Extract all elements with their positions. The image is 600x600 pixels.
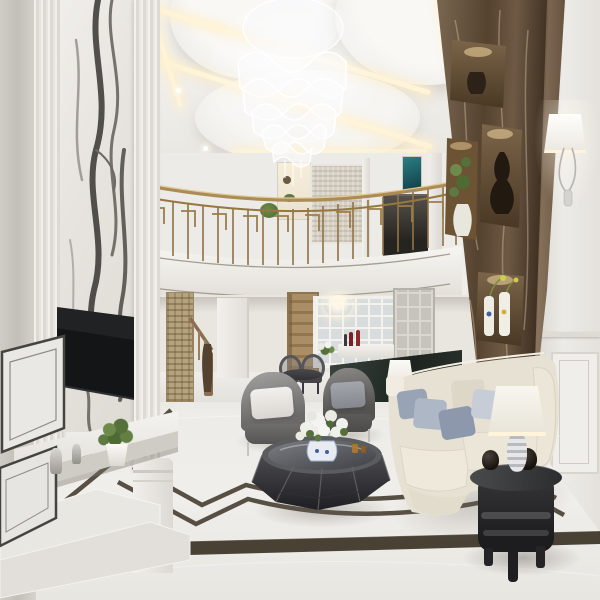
- niche-flower: [500, 275, 506, 281]
- left-wall-details: [0, 0, 200, 600]
- sofa-pillow: [438, 405, 477, 440]
- niche-plant-leaf: [450, 164, 462, 176]
- ledge-silver-vase: [72, 444, 81, 464]
- niche-spotlight-glow: [464, 47, 492, 57]
- niche-plant-leaf: [456, 175, 470, 189]
- chandelier-dome: [243, 0, 343, 58]
- coffee-table: [240, 400, 410, 525]
- niche-spotlight-glow: [450, 142, 472, 150]
- wine-bottle: [356, 330, 360, 346]
- side-table-leg: [508, 552, 518, 582]
- vase-pattern-dot: [325, 450, 329, 454]
- ledge-silver-vase: [50, 448, 62, 474]
- bottle-accent: [502, 310, 507, 315]
- sofa-seat-cushion: [400, 446, 470, 491]
- niche-decor-object: [467, 72, 486, 94]
- side-table-leg: [484, 548, 493, 566]
- recessed-spotlight: [203, 146, 208, 151]
- niche-spotlight-glow: [487, 129, 513, 139]
- wine-bottle: [344, 334, 347, 346]
- white-door: [217, 298, 249, 378]
- amber-cup: [352, 444, 358, 453]
- mini-chandelier: [324, 295, 352, 317]
- table-lamp-shade: [488, 386, 546, 436]
- wainscot-metal-frame: [2, 336, 64, 452]
- flower-bouquet: [315, 340, 335, 356]
- side-table-shelf: [481, 512, 551, 519]
- decor-dark-vase: [482, 450, 499, 470]
- amber-cup: [361, 446, 366, 453]
- side-table-shelf: [483, 530, 549, 536]
- crystal-chandelier: [210, 0, 385, 195]
- sconce-wall-plate: [564, 190, 572, 206]
- porcelain-vase: [307, 441, 337, 461]
- niche-plant-leaf: [461, 157, 471, 167]
- wine-bottle: [349, 332, 353, 346]
- niche-flower: [514, 278, 519, 283]
- wall-sconce-arms: [548, 146, 588, 208]
- living-room-scene: [0, 0, 600, 600]
- bottle-accent: [487, 312, 492, 317]
- vase-pattern-dot: [315, 449, 319, 453]
- niche-white-vase: [453, 204, 472, 236]
- table-lamp-base: [507, 432, 527, 472]
- side-table-leg: [536, 546, 545, 568]
- niche-plant-leaf: [449, 187, 459, 197]
